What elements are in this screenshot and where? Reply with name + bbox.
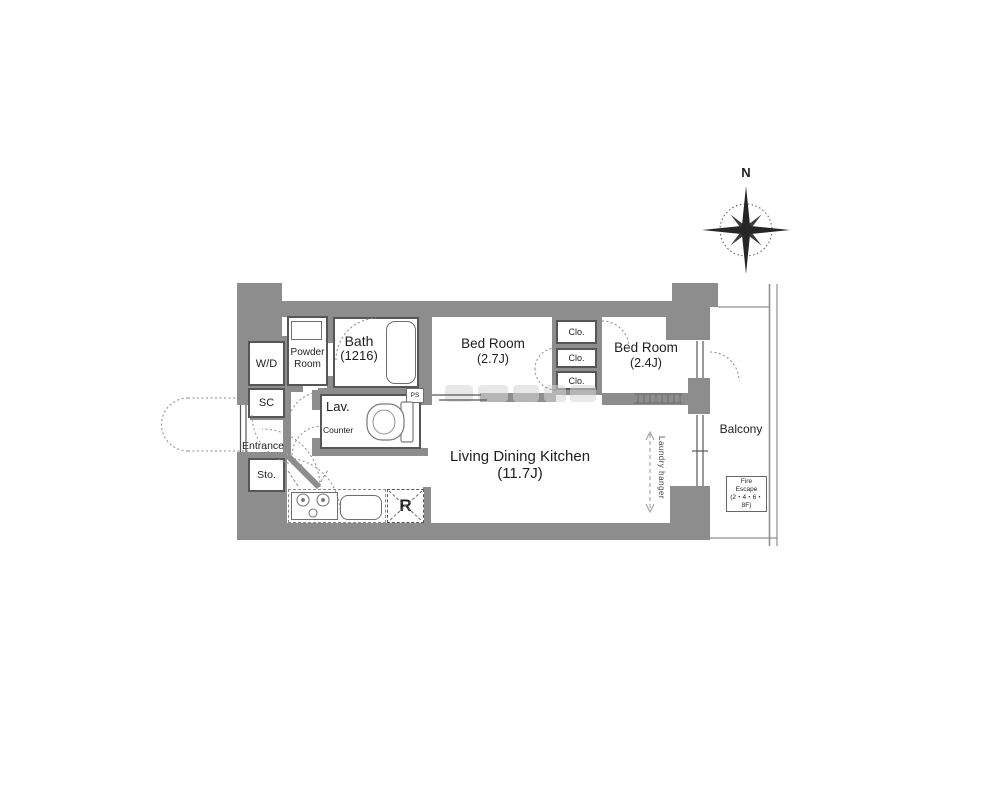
counter-text: Counter [323, 425, 353, 435]
diagonal-wall [287, 455, 319, 487]
storage-box: Sto. [248, 458, 285, 492]
sc-label: SC [259, 397, 274, 409]
ldk-size: (11.7J) [410, 465, 630, 482]
storage-label: Sto. [257, 469, 276, 481]
fridge-box: R [387, 489, 424, 523]
fridge-label: R [399, 496, 411, 516]
closet-1-box: Clo. [556, 320, 597, 344]
floor-plan-canvas: W/D SC Sto. PS Clo. Clo. Clo. R Fire Esc… [0, 0, 999, 801]
closet-2-label: Clo. [568, 353, 584, 363]
powder-line1: Powder [287, 347, 328, 359]
entrance-text: Entrance [242, 440, 284, 452]
counter-label: Counter [323, 426, 373, 436]
bathtub [386, 321, 416, 384]
fire-escape-line3: (2・4・6・8F) [727, 494, 766, 510]
wall-top [282, 301, 707, 317]
bedroom2-name: Bed Room [598, 340, 694, 356]
wall-bottom [237, 523, 690, 540]
powder-room-label: Powder Room [287, 347, 328, 370]
bed1-slider [432, 395, 487, 400]
stove-box [291, 492, 338, 520]
powder-vanity [291, 321, 322, 340]
compass-icon [702, 186, 790, 274]
bedroom1-size: (2.7J) [430, 352, 556, 366]
bath-size: (1216) [330, 349, 388, 364]
sc-box: SC [248, 388, 285, 418]
bedroom1-label: Bed Room (2.7J) [430, 336, 556, 366]
compass-n-text: N [741, 165, 750, 180]
wall-top-right-block [672, 283, 718, 307]
lav-label: Lav. [326, 400, 366, 415]
laundry-hanger-line [646, 432, 654, 512]
wd-label: W/D [256, 358, 277, 370]
compass-n-label: N [736, 166, 756, 181]
closet-2-box: Clo. [556, 348, 597, 368]
ldk-name: Living Dining Kitchen [410, 448, 630, 465]
ldk-label: Living Dining Kitchen (11.7J) [410, 448, 630, 483]
fire-escape-box: Fire Escape (2・4・6・8F) [726, 476, 767, 512]
laundry-hanger-text: Laundry hanger [657, 436, 666, 499]
fire-escape-line1: Fire [741, 478, 752, 486]
balcony-text: Balcony [720, 422, 763, 436]
sink-box [340, 495, 382, 520]
wd-box: W/D [248, 341, 285, 386]
laundry-hanger-label: Laundry hanger [657, 436, 666, 499]
powder-line2: Room [287, 359, 328, 371]
bedroom1-name: Bed Room [430, 336, 556, 352]
lav-text: Lav. [326, 399, 350, 414]
closet-1-label: Clo. [568, 327, 584, 337]
bath-label: Bath (1216) [330, 333, 388, 364]
ps-box: PS [406, 388, 424, 403]
entrance-label: Entrance [238, 440, 288, 452]
closet-3-box: Clo. [556, 371, 597, 390]
closet-3-label: Clo. [568, 376, 584, 386]
wall-right-a [666, 306, 710, 340]
bedroom2-label: Bed Room (2.4J) [598, 340, 694, 370]
wall-bed2-south [602, 393, 710, 405]
wall-bed1-south [480, 393, 556, 402]
fire-escape-line2: Escape [736, 486, 758, 494]
bath-name: Bath [330, 333, 388, 349]
wall-kitchen-stub [423, 487, 431, 527]
balcony-label: Balcony [712, 423, 770, 437]
ps-label: PS [411, 392, 420, 399]
bedroom2-size: (2.4J) [598, 356, 694, 370]
